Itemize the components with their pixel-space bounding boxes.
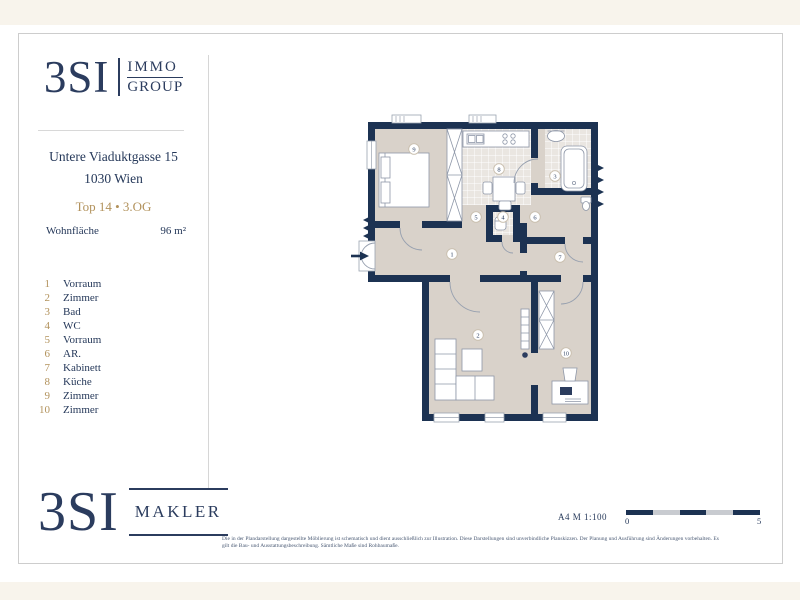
room-legend-row: 4WC: [19, 319, 208, 333]
header-divider: [38, 130, 184, 131]
room-legend-name: Vorraum: [50, 277, 101, 291]
room-badge-number: 5: [474, 214, 477, 221]
room-legend-number: 10: [19, 403, 50, 417]
room-legend-name: AR.: [50, 347, 81, 361]
address-line2: 1030 Wien: [19, 168, 208, 190]
unit-label: Top 14 • 3.OG: [19, 199, 208, 215]
disclaimer-line1: Die in der Plandarstellung dargestellte …: [222, 536, 787, 543]
wardrobe-top: [447, 129, 462, 221]
sidebar: 3SI IMMO GROUP Untere Viaduktgasse 15 10…: [19, 34, 208, 494]
footer-logo: 3SI MAKLER: [38, 484, 228, 540]
scale-bar: [626, 510, 760, 515]
footer-logo-sub: MAKLER: [135, 502, 222, 521]
footer-logo-sub-box: MAKLER: [129, 488, 228, 536]
disclaimer-line2: gilt die Bau- und Ausstattungsbeschreibu…: [222, 543, 787, 550]
header-logo: 3SI IMMO GROUP: [19, 54, 208, 100]
footer-logo-brand: 3SI: [38, 484, 119, 540]
bathtub: [561, 146, 587, 191]
room-legend-name: Zimmer: [50, 291, 98, 305]
room-legend-name: Kabinett: [50, 361, 101, 375]
room-legend-row: 5Vorraum: [19, 333, 208, 347]
room-legend-number: 7: [19, 361, 50, 375]
room-legend-name: Vorraum: [50, 333, 101, 347]
room-legend-name: WC: [50, 319, 81, 333]
room-badge-number: 9: [412, 146, 415, 153]
bed: [379, 153, 429, 207]
floor-plan-drawing: 12345678910: [345, 113, 610, 428]
room-badge-number: 2: [476, 332, 479, 339]
room-legend-name: Zimmer: [50, 403, 98, 417]
kitchen-counter: [463, 131, 529, 147]
room-legend-row: 9Zimmer: [19, 389, 208, 403]
room-legend-number: 2: [19, 291, 50, 305]
room-badge-number: 3: [553, 173, 556, 180]
scale-bar-segment: [680, 510, 707, 515]
room-legend-name: Bad: [50, 305, 81, 319]
header-logo-sub1: IMMO: [127, 59, 183, 78]
room-badge-number: 10: [563, 351, 569, 357]
room-legend-number: 1: [19, 277, 50, 291]
room-legend-row: 8Küche: [19, 375, 208, 389]
scale-bar-segment: [653, 510, 680, 515]
room-legend-name: Küche: [50, 375, 92, 389]
room-legend-name: Zimmer: [50, 389, 98, 403]
sidebar-divider: [208, 55, 209, 490]
address-line1: Untere Viaduktgasse 15: [19, 146, 208, 168]
area-value: 96 m²: [160, 225, 186, 237]
wardrobe-bottom: [539, 291, 554, 349]
room-legend-number: 6: [19, 347, 50, 361]
header-logo-sub2: GROUP: [127, 78, 183, 96]
property-address: Untere Viaduktgasse 15 1030 Wien: [19, 146, 208, 190]
room-legend-row: 6AR.: [19, 347, 208, 361]
room-badge-number: 1: [450, 251, 453, 258]
header-logo-subtitle: IMMO GROUP: [127, 59, 183, 96]
room-legend-number: 4: [19, 319, 50, 333]
room-legend-row: 2Zimmer: [19, 291, 208, 305]
room-legend-row: 1Vorraum: [19, 277, 208, 291]
scale-start-label: 0: [625, 516, 629, 526]
header-logo-brand: 3SI: [44, 54, 110, 100]
room-legend-row: 7Kabinett: [19, 361, 208, 375]
bath-sink: [548, 131, 565, 142]
scale-note: A4 M 1:100: [558, 512, 607, 522]
scale-bar-segment: [706, 510, 733, 515]
room-legend-number: 3: [19, 305, 50, 319]
room-legend-number: 8: [19, 375, 50, 389]
room-legend: 1Vorraum2Zimmer3Bad4WC5Vorraum6AR.7Kabin…: [19, 277, 208, 417]
floor-plan: 12345678910: [345, 113, 610, 428]
room-legend-row: 3Bad: [19, 305, 208, 319]
area-label: Wohnfläche: [46, 225, 99, 237]
disclaimer: Die in der Plandarstellung dargestellte …: [222, 536, 787, 550]
scale-bar-segment: [733, 510, 760, 515]
room-badge-number: 8: [497, 166, 500, 173]
living-area-row: Wohnfläche 96 m²: [46, 225, 186, 237]
room-legend-number: 9: [19, 389, 50, 403]
header-logo-divider: [118, 58, 120, 96]
room-legend-number: 5: [19, 333, 50, 347]
scale-end-label: 5: [757, 516, 761, 526]
document-page: 3SI IMMO GROUP Untere Viaduktgasse 15 10…: [18, 33, 783, 564]
room-legend-row: 10Zimmer: [19, 403, 208, 417]
scale-bar-segment: [626, 510, 653, 515]
